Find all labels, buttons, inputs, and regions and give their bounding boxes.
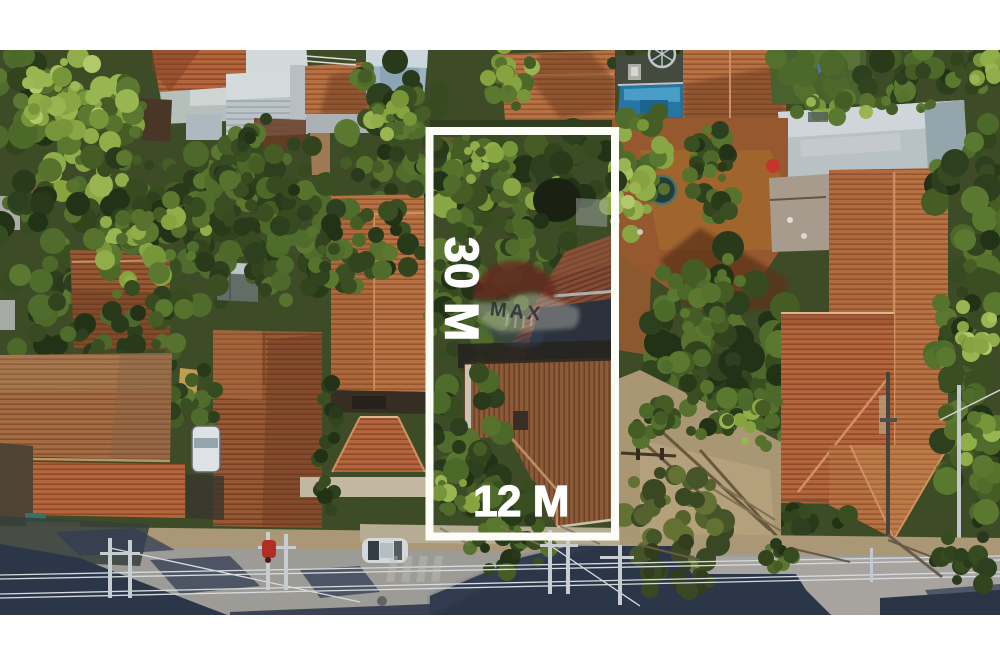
svg-text:12 M: 12 M bbox=[473, 477, 569, 526]
svg-text:30 M: 30 M bbox=[436, 237, 489, 342]
